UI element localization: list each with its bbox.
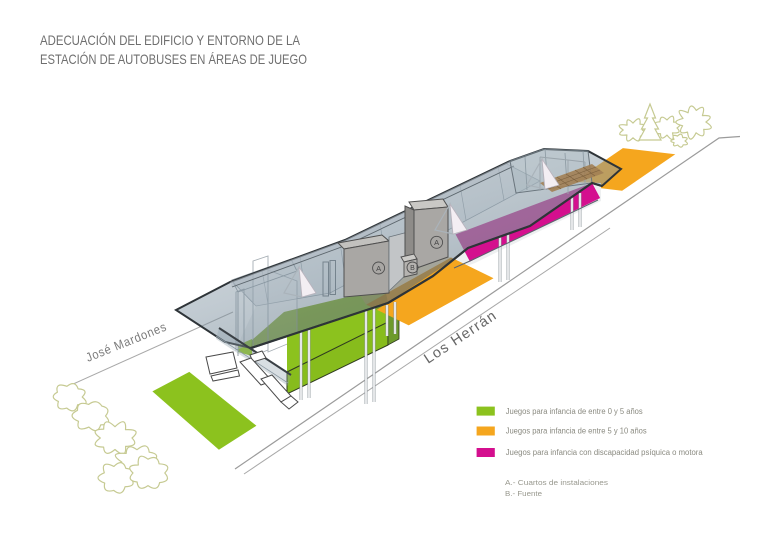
svg-text:B.- Fuente: B.- Fuente: [505, 489, 542, 498]
svg-text:Juegos para infancia con disca: Juegos para infancia con discapacidad ps…: [506, 448, 704, 457]
svg-text:Juegos para infancia de entre: Juegos para infancia de entre 5 y 10 año…: [506, 427, 647, 436]
svg-text:A.- Cuartos de instalaciones: A.- Cuartos de instalaciones: [505, 478, 608, 487]
svg-text:A: A: [376, 264, 381, 273]
svg-text:Juegos para infancia de entre: Juegos para infancia de entre 0 y 5 años: [506, 407, 643, 416]
svg-text:ESTACIÓN DE AUTOBUSES EN ÁREAS: ESTACIÓN DE AUTOBUSES EN ÁREAS DE JUEGO: [40, 51, 307, 67]
svg-text:B: B: [410, 265, 415, 272]
svg-text:A: A: [434, 238, 439, 247]
svg-text:ADECUACIÓN DEL EDIFICIO Y ENTO: ADECUACIÓN DEL EDIFICIO Y ENTORNO DE LA: [40, 32, 301, 48]
